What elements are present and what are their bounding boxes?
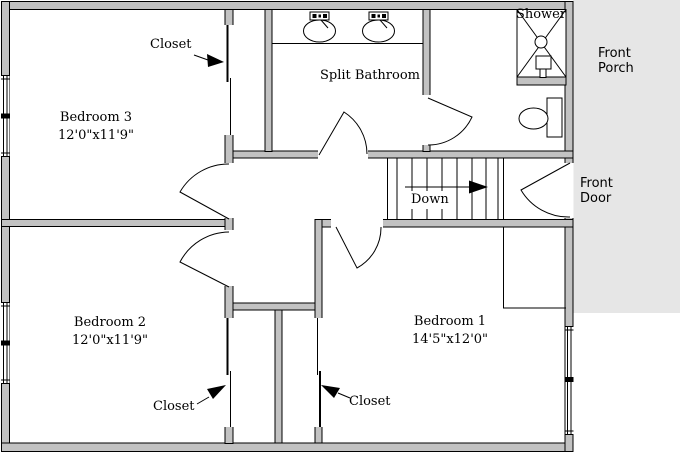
bedroom2-name: Bedroom 2 bbox=[74, 315, 146, 330]
opening-bedroom1-door bbox=[331, 219, 383, 228]
floor-plan: Bedroom 312'0"x11'9" Bedroom 212'0"x11'9… bbox=[0, 0, 680, 453]
bedroom1-dims: 14'5"x12'0" bbox=[412, 332, 488, 347]
closet-label-bedroom3: Closet bbox=[150, 36, 192, 54]
shower-drain bbox=[535, 36, 547, 48]
opening-front-door bbox=[565, 163, 574, 218]
bedroom1-name: Bedroom 1 bbox=[414, 314, 486, 329]
shower-fixture bbox=[536, 56, 551, 69]
interior-walls bbox=[2, 10, 574, 444]
opening-bathroom-door bbox=[318, 150, 368, 159]
toilet-tank bbox=[547, 98, 562, 137]
bedroom3-name: Bedroom 3 bbox=[60, 110, 132, 125]
front-door-label: Front Door bbox=[580, 176, 628, 206]
bedroom2-dims: 12'0"x11'9" bbox=[72, 333, 148, 348]
wall-shower-south bbox=[517, 77, 566, 85]
window-bedroom1 bbox=[566, 326, 574, 435]
bedroom3-label: Bedroom 312'0"x11'9" bbox=[36, 109, 156, 145]
opening-closet3-slider bbox=[224, 25, 234, 135]
wall-upper-rooms-south bbox=[225, 151, 573, 158]
wall-bedroom-divider bbox=[2, 220, 234, 227]
window-bedroom3 bbox=[1, 75, 10, 157]
stairs-down-label: Down bbox=[410, 191, 450, 209]
front-porch-label: Front Porch bbox=[598, 46, 650, 76]
closet-arrow-bottom-right bbox=[321, 385, 350, 398]
closet-label-bedroom1: Closet bbox=[349, 393, 391, 411]
bedroom2-label: Bedroom 212'0"x11'9" bbox=[50, 314, 170, 350]
opening-closet1-slider bbox=[315, 318, 323, 427]
toilet bbox=[519, 98, 562, 137]
bedroom3-dims: 12'0"x11'9" bbox=[58, 128, 134, 143]
bedroom2-door-swing bbox=[180, 232, 229, 287]
bathroom-label: Split Bathroom bbox=[310, 67, 430, 85]
door-swings bbox=[180, 98, 570, 287]
closet-label-bedroom2: Closet bbox=[153, 398, 195, 416]
closet-arrow-top bbox=[194, 54, 224, 67]
wall-exterior-bottom bbox=[2, 443, 574, 452]
opening-bedroom3-door bbox=[224, 163, 234, 218]
toilet-bowl bbox=[519, 108, 548, 129]
window-bedroom2 bbox=[1, 302, 10, 384]
wall-bathroom-west bbox=[265, 10, 272, 152]
bedroom1-door-swing bbox=[336, 227, 381, 268]
bedroom1-label: Bedroom 114'5"x12'0" bbox=[390, 313, 510, 349]
wall-exterior-top bbox=[2, 2, 574, 10]
bathroom-door-swing bbox=[319, 112, 367, 155]
toilet-room-door-swing bbox=[428, 98, 472, 145]
opening-bedroom2-door bbox=[224, 230, 234, 286]
bedroom3-door-swing bbox=[180, 164, 229, 219]
sink-left bbox=[304, 12, 336, 42]
opening-closet2-slider bbox=[224, 318, 234, 427]
front-door-swing bbox=[521, 163, 570, 217]
opening-toilet-room-door bbox=[422, 95, 431, 145]
sink-right bbox=[363, 12, 395, 42]
stairwell-void bbox=[504, 227, 567, 308]
closet-arrow-bottom-left bbox=[197, 385, 226, 404]
shower-label: Shower bbox=[514, 6, 568, 24]
wall-closet-divider bbox=[275, 310, 282, 443]
wall-closets-north bbox=[233, 303, 322, 310]
